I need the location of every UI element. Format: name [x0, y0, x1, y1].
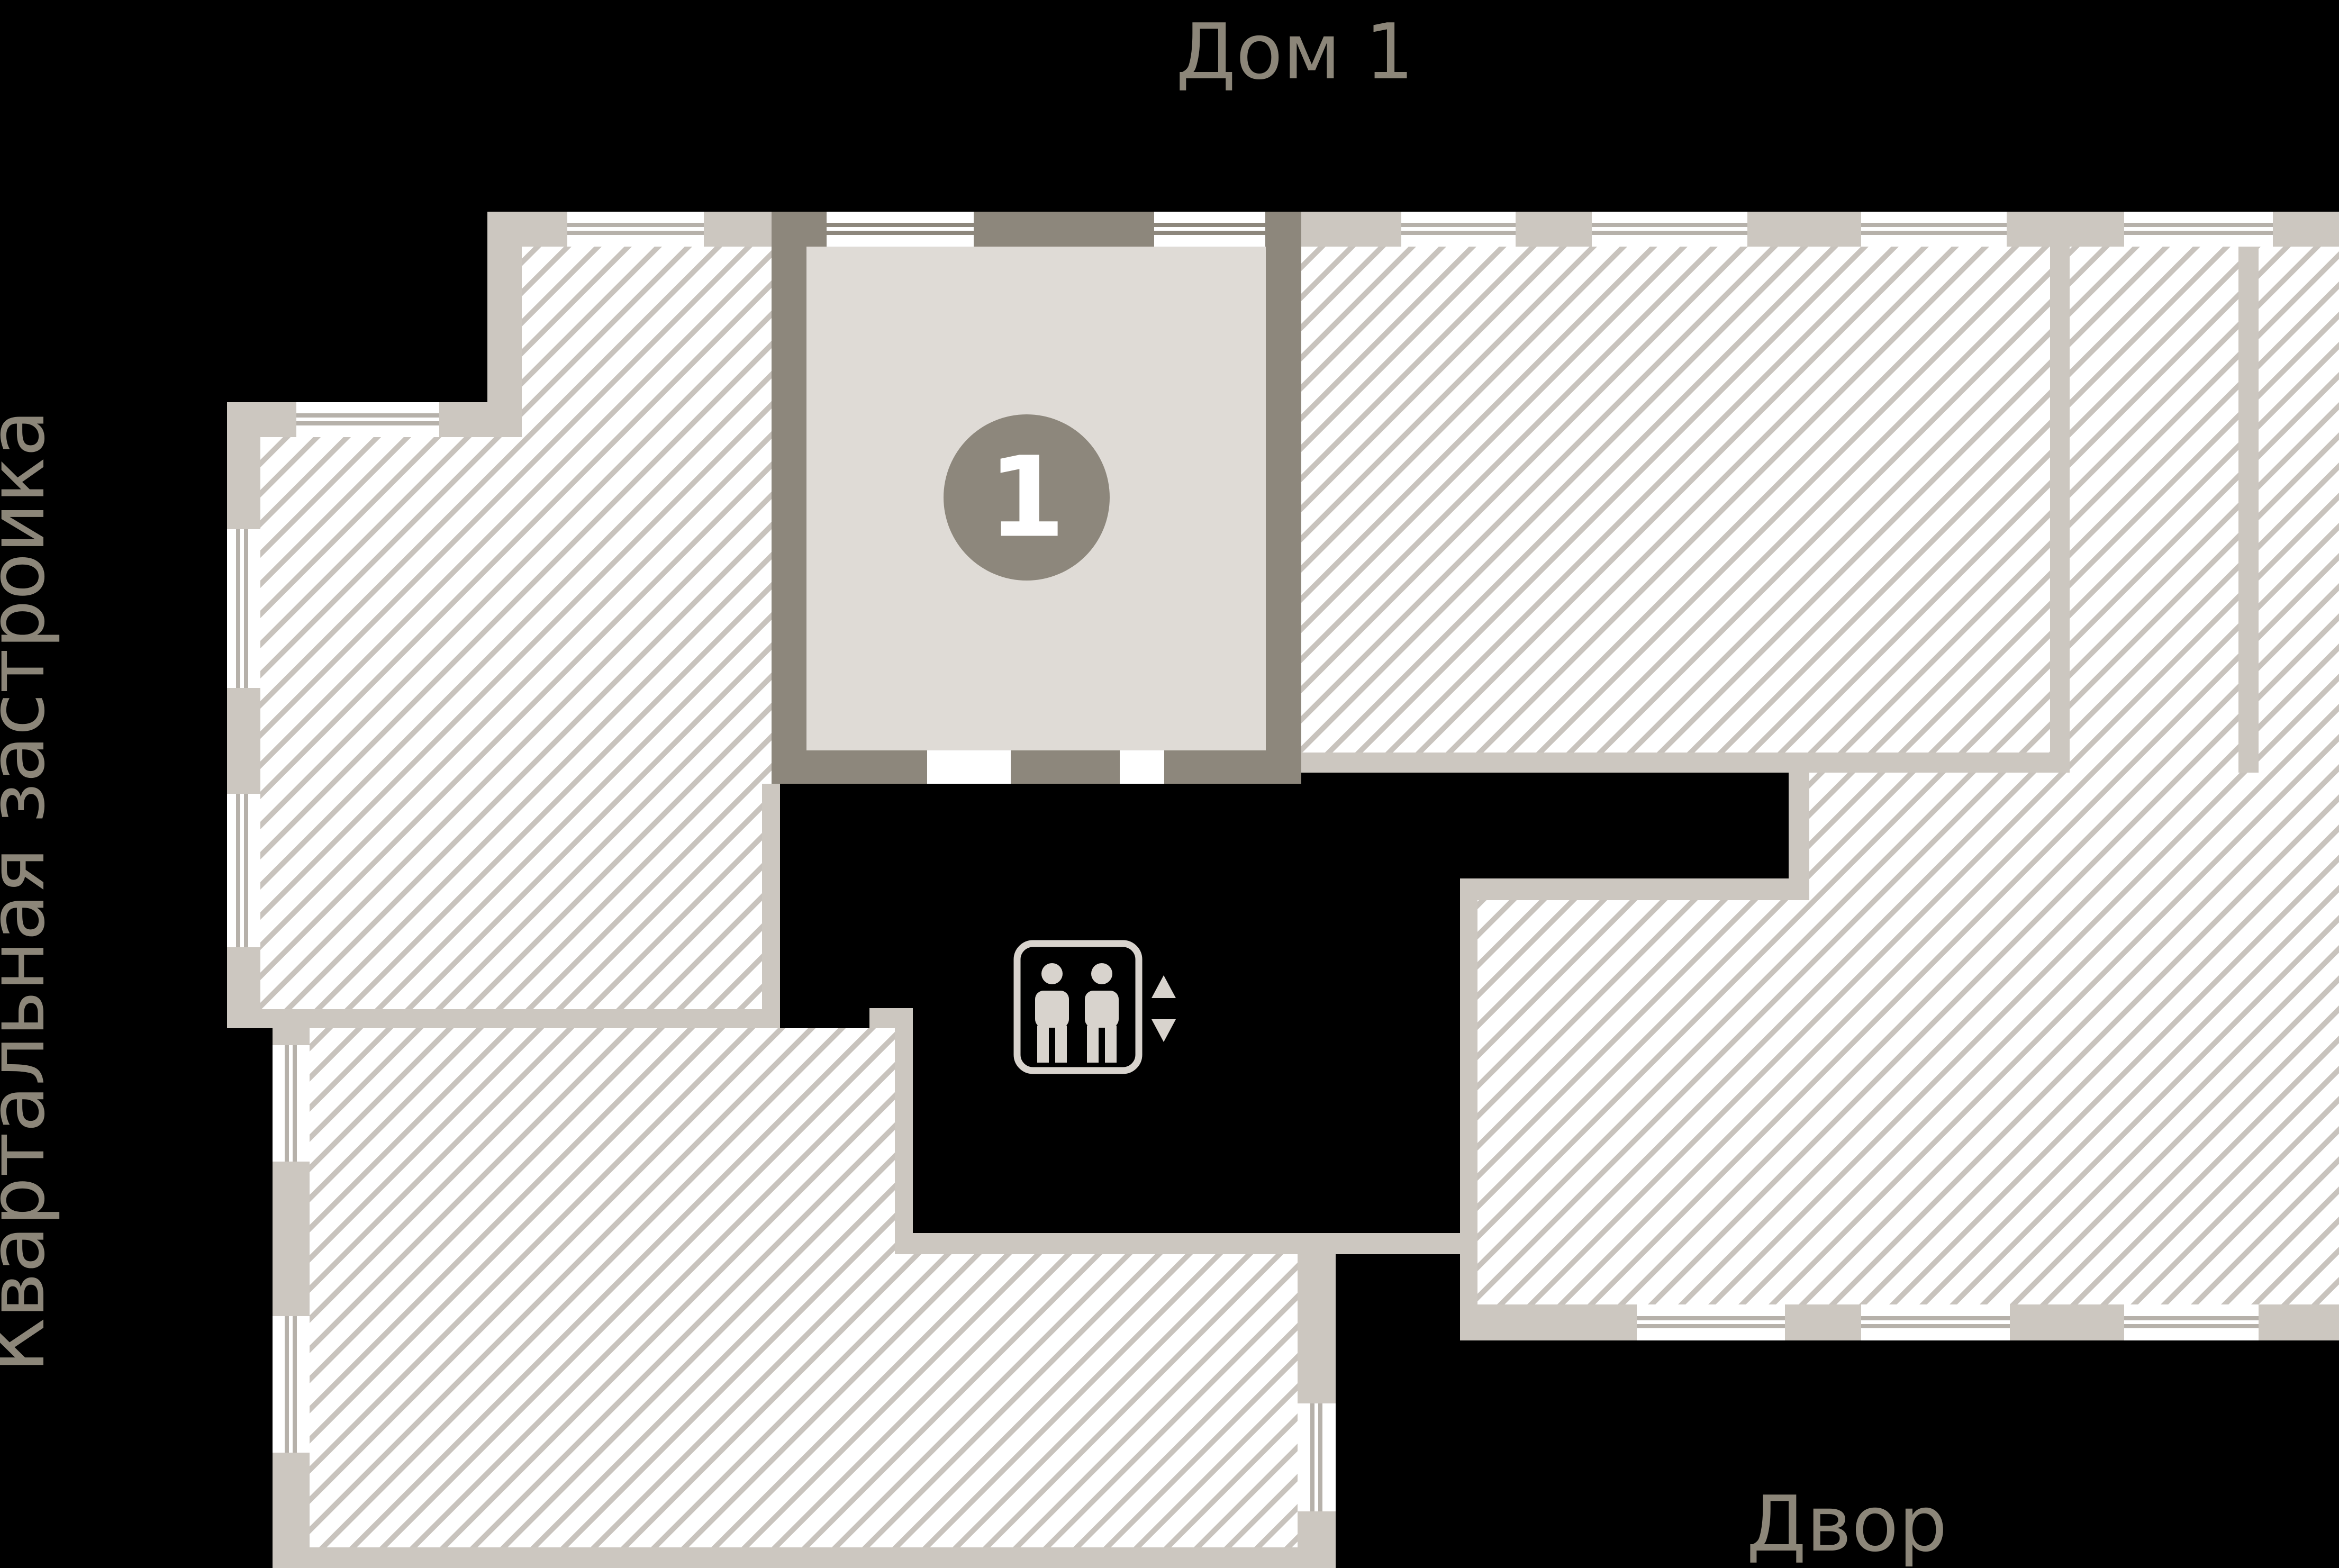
apartment-number: 1 [988, 433, 1065, 563]
arrow-down-icon [1152, 1019, 1176, 1042]
person-icon [1085, 963, 1119, 1063]
unit-lower-left [310, 1028, 1298, 1547]
unit-upper-right [1301, 247, 2050, 753]
arrow-up-icon [1152, 975, 1176, 998]
floor-plan-canvas: 1 Дом 1 Квартальная застройка Двор [0, 0, 2339, 1568]
floor-plan: 1 Дом 1 Квартальная застройка Двор [0, 0, 2339, 1568]
courtyard-label: Двор [1746, 1480, 1947, 1568]
apartment-1-badge[interactable]: 1 [944, 414, 1110, 581]
apartment-1[interactable]: 1 [772, 212, 1301, 784]
unit-far-right [2070, 247, 2339, 773]
unit-mid-right [1477, 773, 2339, 1304]
person-icon [1035, 963, 1069, 1063]
elevator-icon [1017, 944, 1176, 1071]
left-side-label: Квартальная застройка [0, 410, 62, 1372]
plan-title: Дом 1 [1176, 7, 1414, 97]
